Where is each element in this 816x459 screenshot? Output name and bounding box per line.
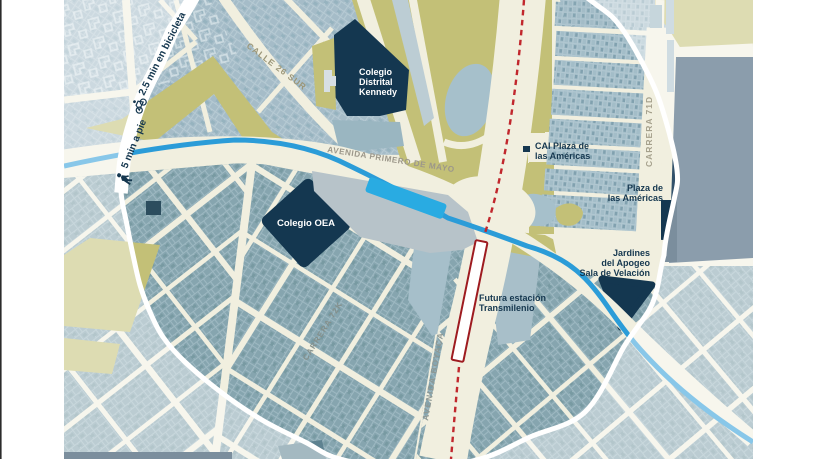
svg-text:CARRERA 71D: CARRERA 71D xyxy=(644,96,654,167)
svg-text:del Apogeo: del Apogeo xyxy=(601,258,650,268)
svg-text:Colegio: Colegio xyxy=(359,67,393,77)
svg-text:Jardines: Jardines xyxy=(613,248,650,258)
svg-text:Transmilenio: Transmilenio xyxy=(479,303,535,313)
svg-text:Kennedy: Kennedy xyxy=(359,87,397,97)
svg-text:las Américas: las Américas xyxy=(608,193,663,203)
svg-text:CAI Plaza de: CAI Plaza de xyxy=(535,141,589,151)
svg-text:Sala de Velación: Sala de Velación xyxy=(579,268,650,278)
svg-text:Futura estación: Futura estación xyxy=(479,293,546,303)
svg-text:Colegio OEA: Colegio OEA xyxy=(277,218,335,229)
svg-text:las Américas: las Américas xyxy=(535,151,590,161)
svg-text:Distrital: Distrital xyxy=(359,77,393,87)
svg-text:Plaza de: Plaza de xyxy=(627,183,663,193)
